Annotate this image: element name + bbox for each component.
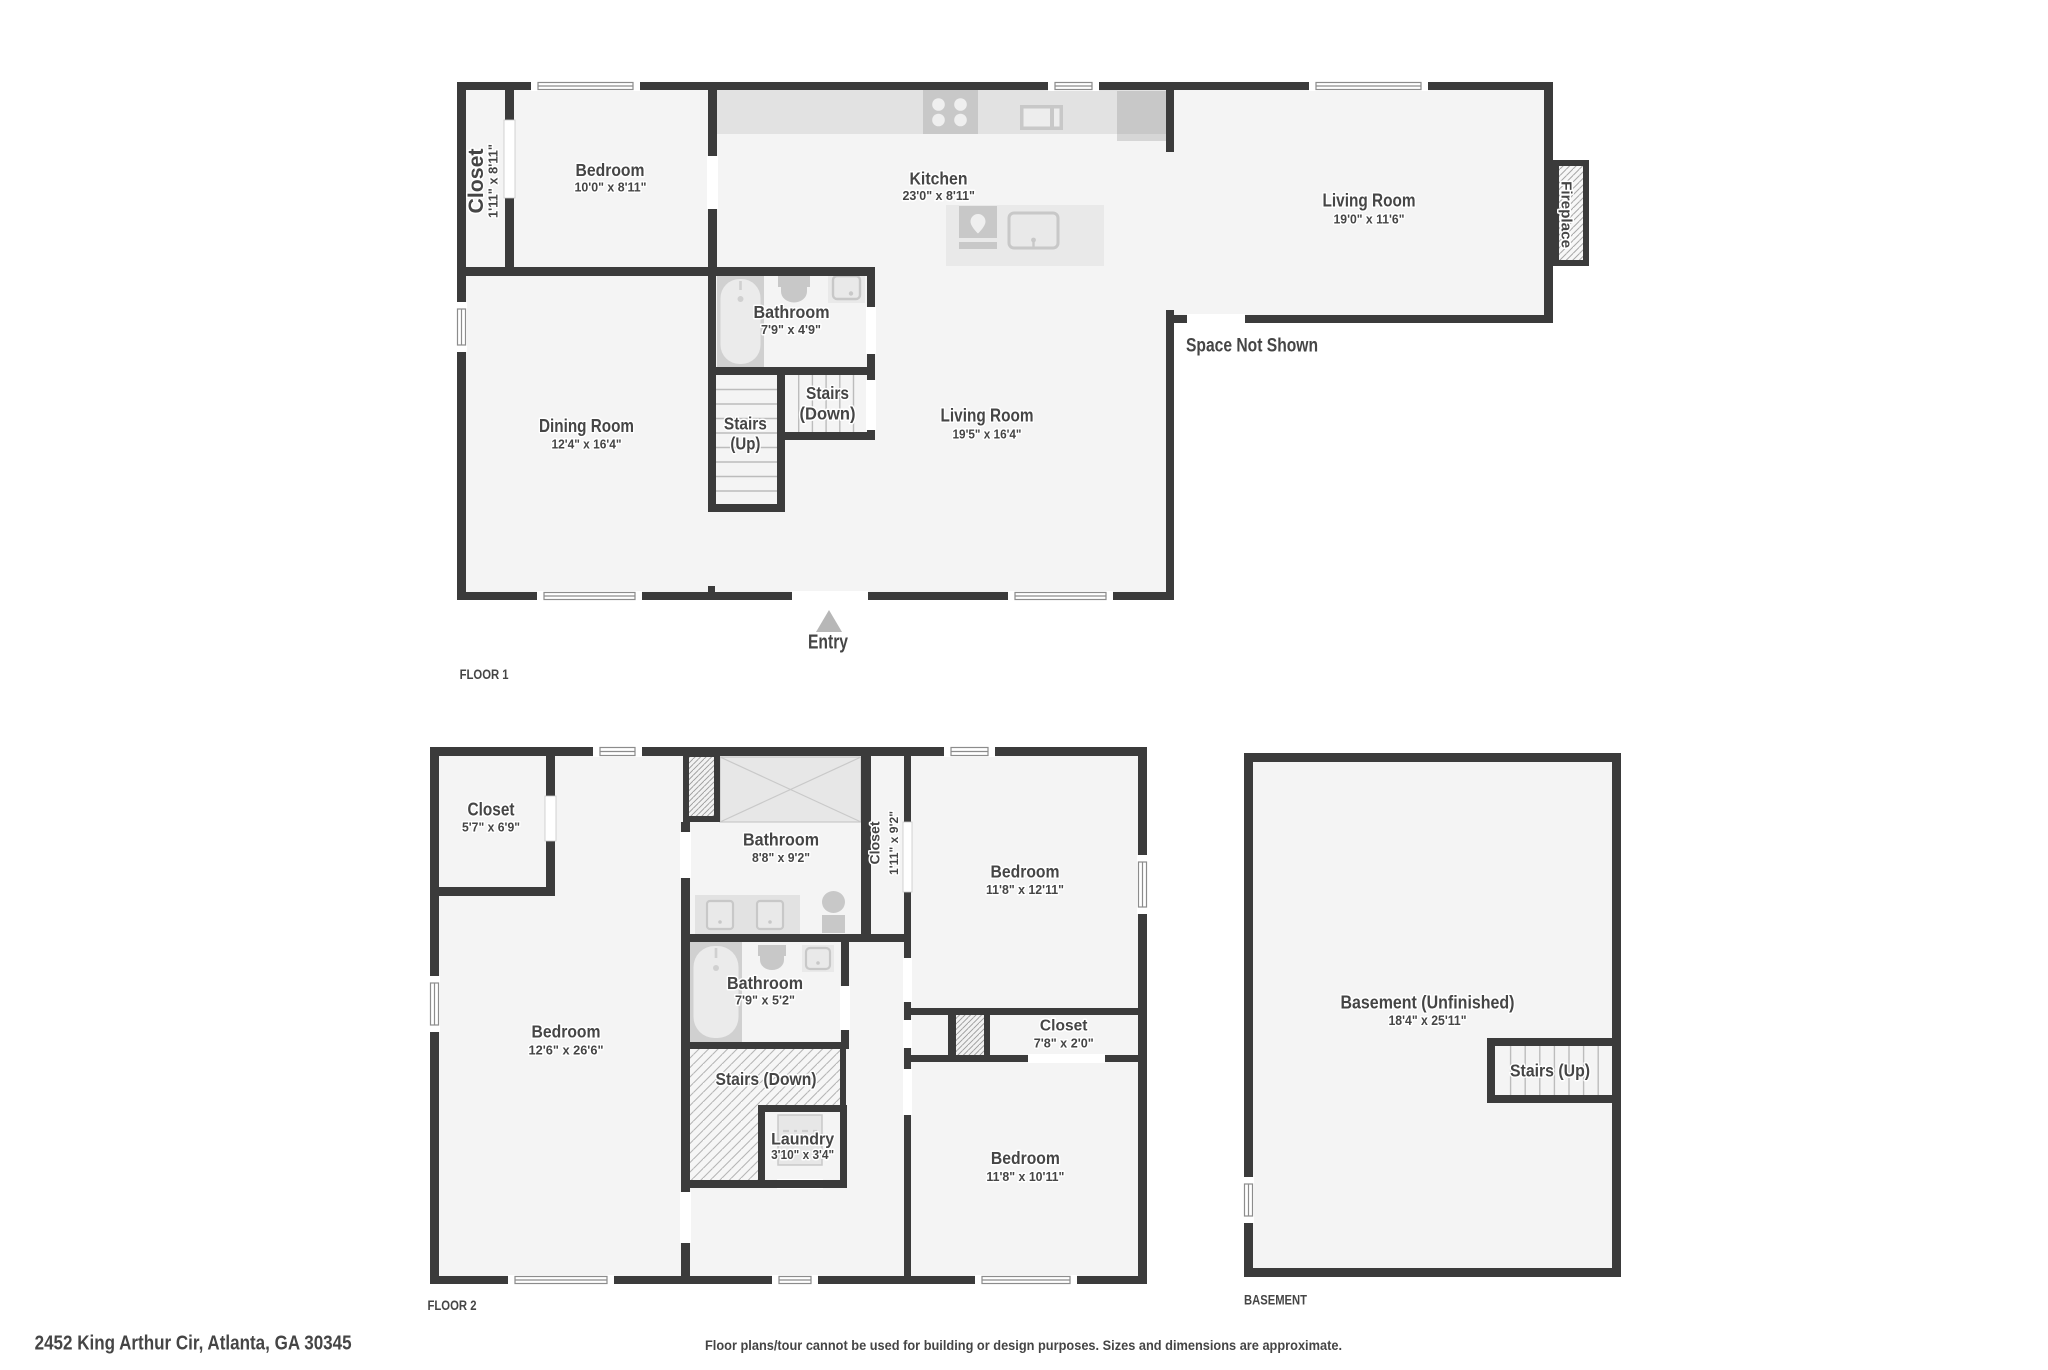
svg-text:Closet: Closet (867, 821, 883, 864)
svg-text:Closet: Closet (468, 800, 515, 820)
svg-text:12'4" x 16'4": 12'4" x 16'4" (552, 436, 622, 451)
svg-text:Bathroom: Bathroom (743, 830, 819, 850)
svg-text:Stairs: Stairs (724, 414, 767, 434)
svg-text:7'9" x 4'9": 7'9" x 4'9" (761, 322, 821, 337)
svg-text:Stairs: Stairs (806, 383, 849, 403)
svg-text:7'9" x 5'2": 7'9" x 5'2" (735, 993, 795, 1008)
svg-text:Stairs (Down): Stairs (Down) (716, 1069, 817, 1089)
svg-text:Bedroom: Bedroom (532, 1021, 601, 1041)
svg-text:Closet: Closet (1040, 1018, 1088, 1035)
svg-text:18'4" x 25'11": 18'4" x 25'11" (1389, 1012, 1467, 1028)
svg-text:2452 King Arthur Cir, Atlanta,: 2452 King Arthur Cir, Atlanta, GA 30345 (35, 1332, 352, 1355)
svg-text:Bedroom: Bedroom (576, 160, 645, 180)
svg-text:8'8" x 9'2": 8'8" x 9'2" (752, 850, 810, 865)
svg-text:Entry: Entry (808, 632, 849, 654)
svg-text:1'11" x 8'11": 1'11" x 8'11" (486, 144, 501, 218)
svg-text:19'0" x 11'6": 19'0" x 11'6" (1334, 211, 1405, 226)
svg-text:Basement (Unfinished): Basement (Unfinished) (1341, 992, 1515, 1012)
svg-text:11'8" x 10'11": 11'8" x 10'11" (986, 1169, 1064, 1184)
svg-text:Bedroom: Bedroom (991, 1148, 1060, 1168)
svg-text:FLOOR 1: FLOOR 1 (460, 667, 509, 682)
svg-text:11'8" x 12'11": 11'8" x 12'11" (986, 882, 1064, 897)
svg-text:(Up): (Up) (730, 434, 760, 454)
svg-text:BASEMENT: BASEMENT (1244, 1293, 1308, 1308)
svg-text:FLOOR 2: FLOOR 2 (428, 1298, 477, 1313)
svg-text:1'11" x 9'2": 1'11" x 9'2" (887, 811, 901, 875)
svg-text:Stairs (Up): Stairs (Up) (1510, 1060, 1590, 1080)
svg-text:Fireplace: Fireplace (1558, 181, 1575, 248)
svg-text:Dining Room: Dining Room (539, 416, 634, 436)
svg-text:Bathroom: Bathroom (754, 302, 830, 322)
svg-text:19'5" x 16'4": 19'5" x 16'4" (953, 426, 1022, 441)
svg-text:10'0" x 8'11": 10'0" x 8'11" (575, 180, 647, 195)
svg-text:Laundry: Laundry (771, 1130, 835, 1149)
svg-text:12'6" x 26'6": 12'6" x 26'6" (529, 1043, 604, 1058)
svg-text:5'7" x 6'9": 5'7" x 6'9" (462, 820, 520, 835)
svg-text:Bedroom: Bedroom (991, 861, 1060, 881)
svg-text:Floor plans/tour cannot be use: Floor plans/tour cannot be used for buil… (705, 1338, 1342, 1353)
svg-text:23'0" x 8'11": 23'0" x 8'11" (902, 188, 975, 203)
svg-text:Living Room: Living Room (1323, 190, 1416, 210)
svg-text:Living Room: Living Room (941, 405, 1034, 425)
svg-text:3'10" x 3'4": 3'10" x 3'4" (771, 1147, 834, 1162)
svg-text:Space Not Shown: Space Not Shown (1186, 335, 1318, 357)
svg-text:Kitchen: Kitchen (910, 168, 968, 188)
svg-text:Bathroom: Bathroom (727, 973, 803, 993)
svg-text:(Down): (Down) (800, 403, 856, 423)
svg-text:7'8" x 2'0": 7'8" x 2'0" (1034, 1036, 1094, 1051)
